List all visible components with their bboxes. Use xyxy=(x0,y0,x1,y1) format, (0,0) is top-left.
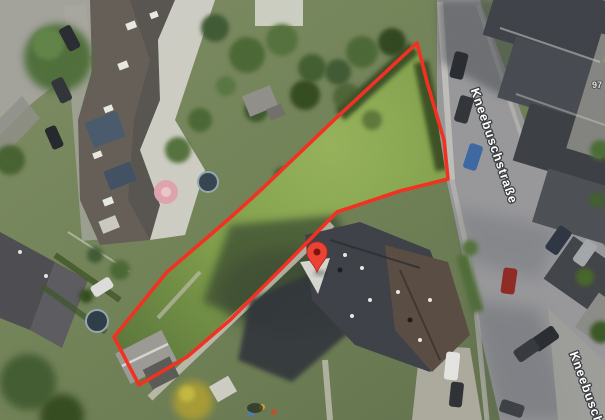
house-number-label: 97 xyxy=(592,80,602,90)
photo-grain xyxy=(0,0,605,420)
satellite-map-canvas[interactable]: Kneebuschstraße Kneebuschstraße 97 xyxy=(0,0,605,420)
pin-inner-dot xyxy=(314,249,321,256)
pin-shadow xyxy=(314,270,327,275)
